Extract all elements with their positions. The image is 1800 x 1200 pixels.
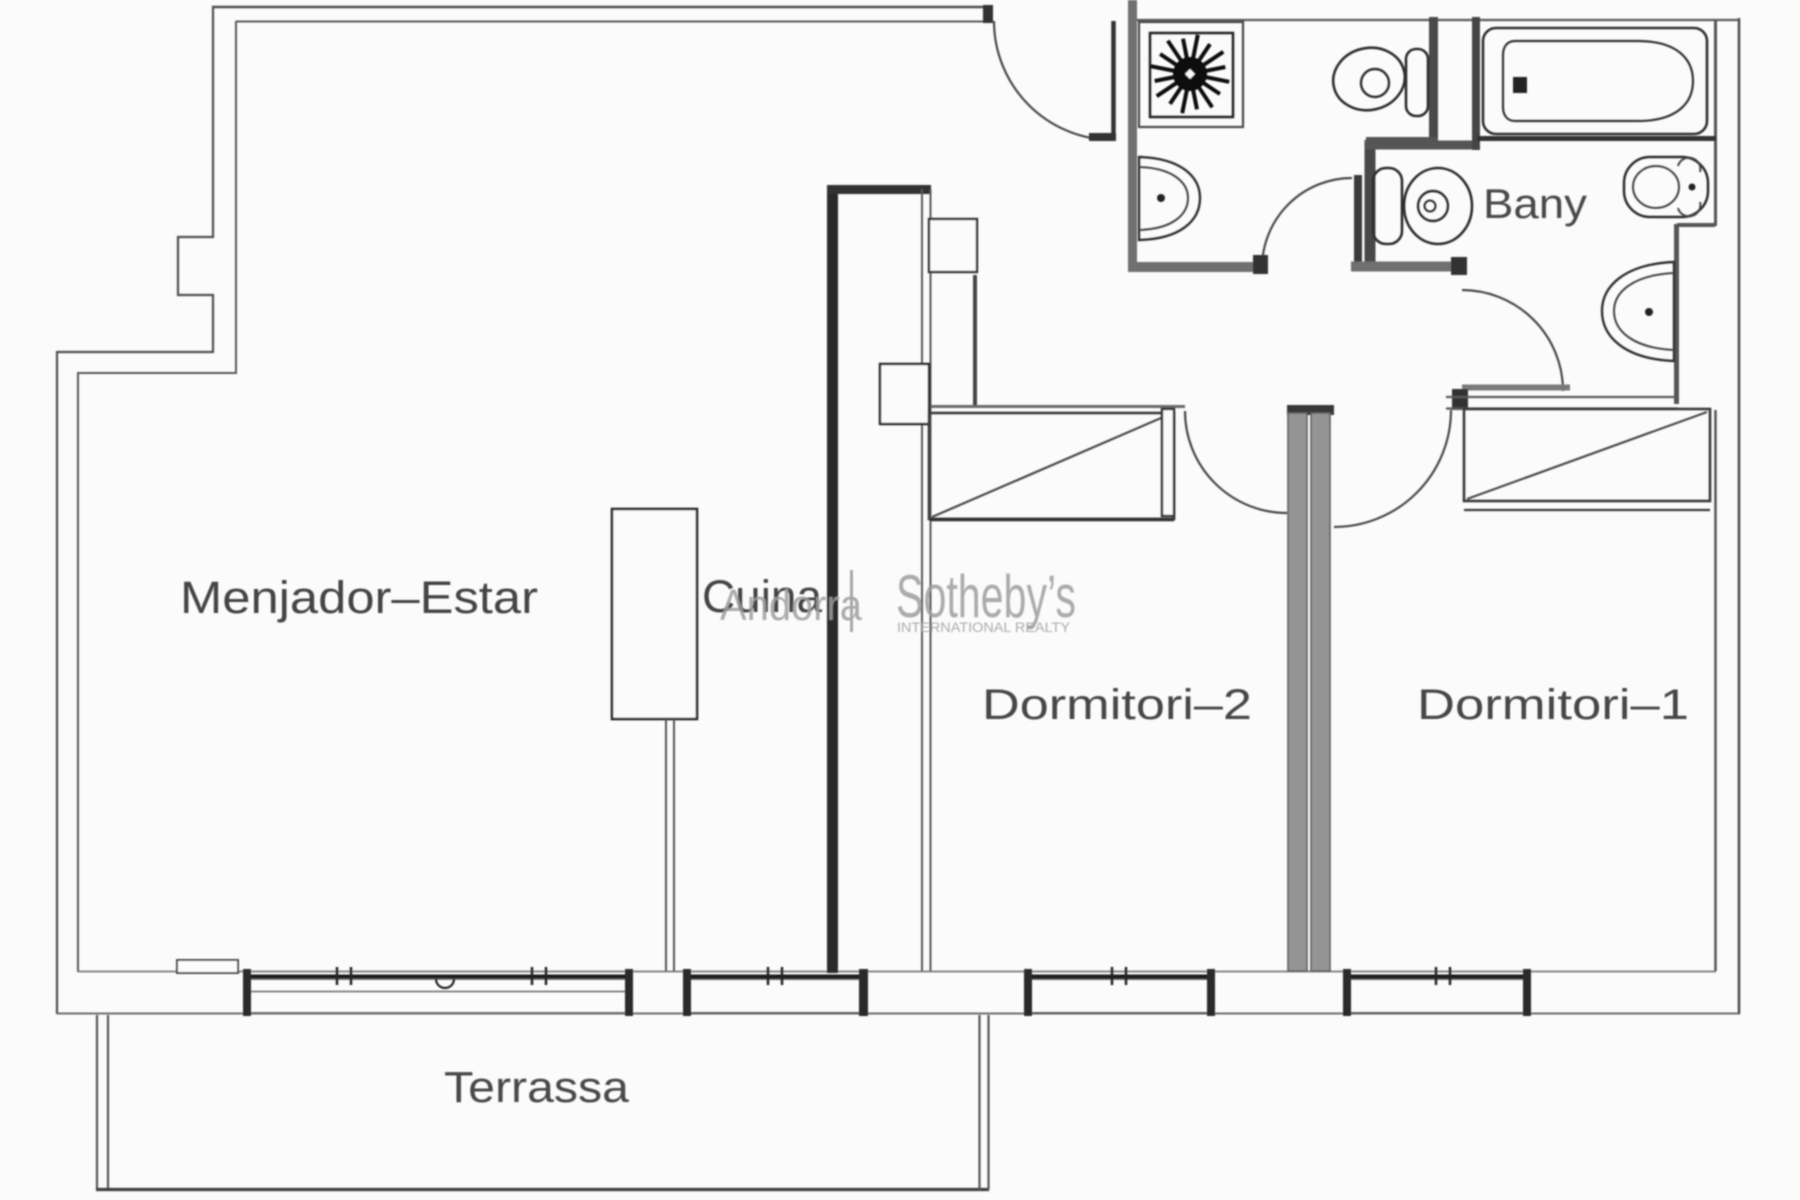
svg-text:Terrassa: Terrassa xyxy=(444,1063,630,1112)
svg-text:Bany: Bany xyxy=(1483,180,1587,227)
svg-text:Dormitori–1: Dormitori–1 xyxy=(1417,681,1689,729)
svg-text:Menjador–Estar: Menjador–Estar xyxy=(180,572,538,623)
svg-text:INTERNATIONAL REALTY: INTERNATIONAL REALTY xyxy=(897,620,1070,635)
svg-text:Andorra: Andorra xyxy=(720,581,862,630)
svg-text:Dormitori–2: Dormitori–2 xyxy=(982,681,1252,729)
